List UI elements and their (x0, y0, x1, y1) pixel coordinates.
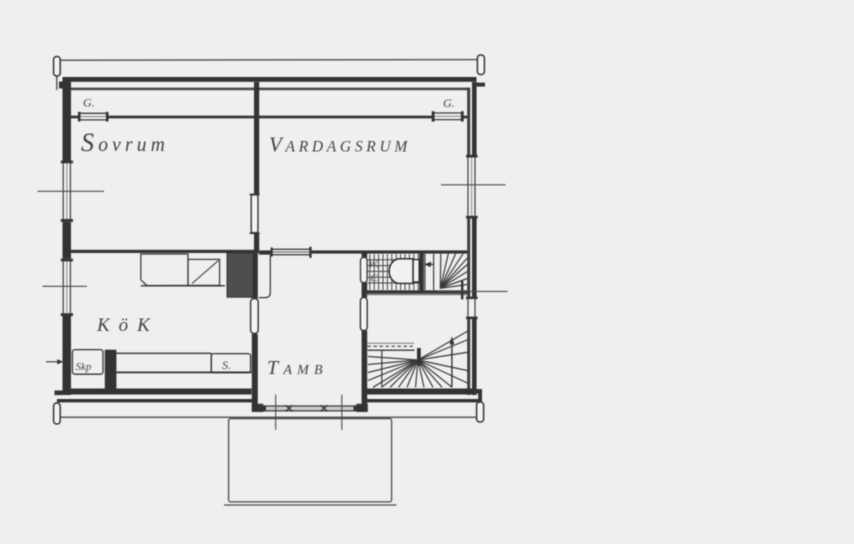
svg-text:Skp: Skp (76, 361, 92, 373)
svg-text:G.: G. (83, 96, 95, 110)
svg-text:G.: G. (443, 96, 455, 110)
svg-text:W.: W. (369, 260, 379, 271)
svg-text:C.: C. (371, 274, 381, 285)
svg-text:S.: S. (222, 358, 231, 372)
svg-text:KöK: KöK (96, 315, 159, 336)
